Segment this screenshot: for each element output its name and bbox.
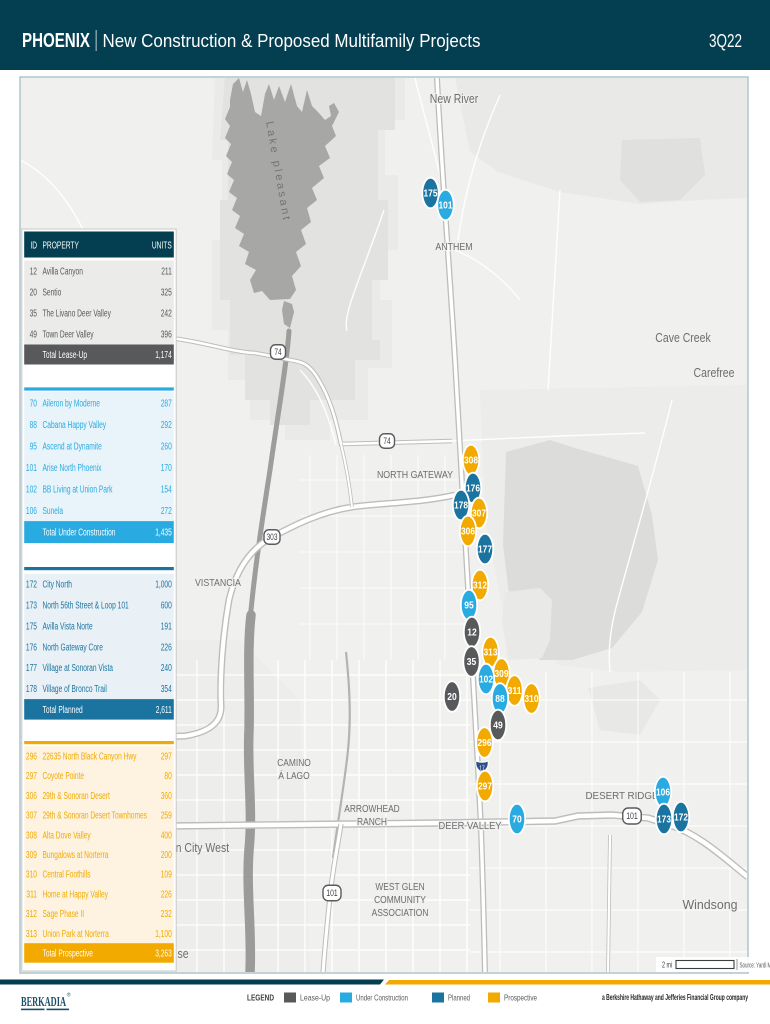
svg-text:307: 307 (26, 811, 37, 822)
svg-text:176: 176 (26, 642, 37, 653)
svg-text:UNITS: UNITS (152, 240, 172, 251)
svg-text:PHOENIX: PHOENIX (22, 30, 90, 52)
svg-text:178: 178 (26, 684, 37, 695)
svg-text:297: 297 (26, 771, 37, 782)
svg-text:Prospective: Prospective (504, 994, 537, 1003)
svg-text:354: 354 (161, 684, 172, 695)
svg-text:95: 95 (30, 441, 38, 452)
svg-text:240: 240 (161, 663, 172, 674)
svg-text:170: 170 (161, 463, 172, 474)
svg-text:Lease-Up: Lease-Up (300, 994, 330, 1003)
svg-text:Cave Creek: Cave Creek (655, 331, 711, 345)
svg-text:DEER VALLEY: DEER VALLEY (439, 821, 502, 832)
svg-text:22635 North Black Canyon Hwy: 22635 North Black Canyon Hwy (43, 751, 137, 762)
svg-text:PROPERTY: PROPERTY (43, 240, 80, 251)
svg-text:259: 259 (161, 811, 172, 822)
svg-text:272: 272 (161, 506, 172, 517)
svg-text:310: 310 (26, 870, 37, 881)
svg-text:172: 172 (26, 580, 37, 591)
svg-text:306: 306 (26, 791, 37, 802)
svg-text:88: 88 (495, 693, 505, 705)
svg-text:177: 177 (478, 544, 492, 556)
svg-text:Home at Happy Valley: Home at Happy Valley (43, 889, 109, 900)
svg-text:309: 309 (26, 850, 37, 861)
svg-text:309: 309 (495, 668, 509, 680)
svg-text:95: 95 (464, 600, 474, 612)
svg-text:308: 308 (464, 455, 478, 467)
svg-text:74: 74 (274, 347, 281, 357)
svg-text:2 mi: 2 mi (662, 961, 672, 970)
svg-text:172: 172 (674, 812, 688, 824)
svg-text:3Q22: 3Q22 (709, 30, 742, 51)
svg-text:600: 600 (161, 600, 172, 611)
svg-text:242: 242 (161, 308, 172, 319)
svg-text:106: 106 (26, 506, 37, 517)
svg-text:Sage Phase II: Sage Phase II (43, 909, 85, 920)
svg-text:Sunela: Sunela (43, 506, 64, 517)
svg-text:2,611: 2,611 (156, 705, 172, 716)
svg-text:Carefree: Carefree (694, 366, 735, 380)
svg-text:®: ® (67, 992, 71, 999)
svg-text:RANCH: RANCH (357, 817, 387, 828)
svg-text:101: 101 (439, 200, 453, 212)
svg-text:ASSOCIATION: ASSOCIATION (372, 908, 429, 919)
svg-text:260: 260 (161, 441, 172, 452)
svg-text:ID: ID (30, 240, 37, 251)
svg-text:311: 311 (508, 685, 522, 697)
svg-text:Á LAGO: Á LAGO (278, 769, 309, 782)
svg-text:New River: New River (430, 92, 478, 106)
svg-text:308: 308 (26, 830, 37, 841)
svg-text:VISTANCIA: VISTANCIA (195, 577, 241, 589)
svg-text:297: 297 (161, 751, 172, 762)
svg-text:177: 177 (26, 663, 37, 674)
svg-text:70: 70 (512, 814, 522, 826)
svg-text:396: 396 (161, 329, 172, 340)
svg-text:LEGEND: LEGEND (247, 994, 274, 1003)
svg-text:Union Park at Norterra: Union Park at Norterra (43, 929, 110, 940)
svg-text:12: 12 (467, 627, 477, 639)
svg-text:New Construction & Proposed Mu: New Construction & Proposed Multifamily … (103, 30, 481, 51)
svg-text:109: 109 (161, 870, 172, 881)
svg-text:1,174: 1,174 (155, 350, 172, 361)
svg-text:Village of Bronco Trail: Village of Bronco Trail (43, 684, 107, 695)
svg-text:296: 296 (26, 751, 37, 762)
svg-text:Source: Yardi Matrix: Source: Yardi Matrix (740, 961, 770, 970)
svg-text:49: 49 (493, 720, 503, 732)
svg-text:400: 400 (161, 830, 172, 841)
svg-text:306: 306 (461, 526, 475, 538)
svg-text:Central Foothills: Central Foothills (43, 870, 91, 881)
svg-text:Alta Dove Valley: Alta Dove Valley (43, 830, 91, 841)
svg-text:20: 20 (30, 287, 38, 298)
svg-text:ARROWHEAD: ARROWHEAD (344, 804, 400, 815)
svg-text:Total Planned: Total Planned (43, 705, 83, 716)
svg-text:20: 20 (447, 691, 457, 703)
svg-text:102: 102 (26, 484, 37, 495)
svg-text:Sentio: Sentio (43, 287, 62, 298)
svg-text:175: 175 (424, 188, 438, 200)
svg-text:CAMINO: CAMINO (277, 758, 311, 769)
svg-text:312: 312 (26, 909, 37, 920)
svg-text:WEST GLEN: WEST GLEN (375, 882, 424, 893)
svg-text:80: 80 (164, 771, 172, 782)
svg-text:Aileron by Moderne: Aileron by Moderne (43, 398, 101, 409)
svg-text:Windsong: Windsong (683, 898, 738, 912)
svg-text:49: 49 (30, 329, 37, 340)
svg-text:The Livano Deer Valley: The Livano Deer Valley (43, 308, 111, 319)
svg-text:297: 297 (478, 781, 492, 793)
svg-text:NORTH GATEWAY: NORTH GATEWAY (377, 469, 453, 481)
svg-text:175: 175 (26, 621, 37, 632)
svg-text:101: 101 (326, 888, 337, 898)
svg-text:1,435: 1,435 (155, 528, 172, 539)
svg-text:COMMUNITY: COMMUNITY (374, 895, 426, 906)
svg-text:a Berkshire Hathaway and Jeffe: a Berkshire Hathaway and Jefferies Finan… (602, 993, 748, 1002)
svg-text:Arise North Phoenix: Arise North Phoenix (43, 463, 102, 474)
svg-text:Coyote Pointe: Coyote Pointe (43, 771, 85, 782)
svg-text:313: 313 (26, 929, 37, 940)
svg-text:70: 70 (30, 398, 38, 409)
svg-text:303: 303 (267, 532, 278, 542)
svg-text:173: 173 (26, 600, 37, 611)
svg-text:101: 101 (626, 811, 638, 821)
svg-text:Total Under Construction: Total Under Construction (43, 528, 116, 539)
svg-text:74: 74 (383, 436, 390, 446)
svg-text:Total Prospective: Total Prospective (43, 948, 94, 959)
svg-text:101: 101 (26, 463, 37, 474)
svg-text:29th & Sonoran Desert: 29th & Sonoran Desert (43, 791, 111, 802)
svg-text:Planned: Planned (448, 994, 470, 1003)
svg-text:Ascend at Dynamite: Ascend at Dynamite (43, 441, 103, 452)
svg-text:3,263: 3,263 (155, 948, 172, 959)
svg-text:307: 307 (472, 508, 486, 520)
svg-text:292: 292 (161, 420, 172, 431)
svg-text:BB Living at Union Park: BB Living at Union Park (43, 484, 113, 495)
svg-text:se: se (177, 947, 188, 961)
svg-text:29th & Sonoran Desert Townhome: 29th & Sonoran Desert Townhomes (43, 811, 148, 822)
svg-text:226: 226 (161, 642, 172, 653)
svg-text:310: 310 (525, 693, 539, 705)
svg-text:1,100: 1,100 (155, 929, 172, 940)
svg-text:Village at Sonoran Vista: Village at Sonoran Vista (43, 663, 114, 674)
svg-text:BERKADIA: BERKADIA (21, 995, 67, 1010)
svg-text:Avilla Vista Norte: Avilla Vista Norte (43, 621, 94, 632)
svg-text:173: 173 (657, 814, 671, 826)
svg-text:12: 12 (30, 266, 37, 277)
svg-text:178: 178 (454, 500, 468, 512)
svg-text:ANTHEM: ANTHEM (435, 241, 472, 253)
svg-text:35: 35 (30, 308, 38, 319)
svg-text:311: 311 (26, 889, 37, 900)
svg-text:200: 200 (161, 850, 172, 861)
svg-text:North Gateway Core: North Gateway Core (43, 642, 104, 653)
svg-text:211: 211 (161, 266, 172, 277)
svg-text:Bungalows at Norterra: Bungalows at Norterra (43, 850, 109, 861)
svg-text:312: 312 (473, 580, 487, 592)
svg-text:North 56th Street & Loop 101: North 56th Street & Loop 101 (43, 600, 129, 611)
svg-text:232: 232 (161, 909, 172, 920)
svg-text:Avilla Canyon: Avilla Canyon (43, 266, 83, 277)
svg-text:Cabana Happy Valley: Cabana Happy Valley (43, 420, 107, 431)
svg-text:1,000: 1,000 (155, 580, 172, 591)
svg-text:191: 191 (161, 621, 172, 632)
svg-text:226: 226 (161, 889, 172, 900)
svg-text:325: 325 (161, 287, 172, 298)
svg-text:Under Construction: Under Construction (356, 994, 408, 1003)
svg-text:313: 313 (484, 647, 498, 659)
svg-text:296: 296 (478, 737, 492, 749)
svg-text:102: 102 (479, 674, 493, 686)
svg-text:154: 154 (161, 484, 172, 495)
svg-text:176: 176 (466, 483, 480, 495)
svg-text:287: 287 (161, 398, 172, 409)
svg-text:Town Deer Valley: Town Deer Valley (43, 329, 94, 340)
svg-text:360: 360 (161, 791, 172, 802)
svg-text:106: 106 (656, 787, 670, 799)
svg-text:DESERT RIDGE: DESERT RIDGE (586, 791, 659, 802)
svg-text:35: 35 (467, 656, 477, 668)
svg-text:88: 88 (30, 420, 38, 431)
svg-text:Total Lease-Up: Total Lease-Up (43, 350, 88, 361)
svg-text:City North: City North (43, 580, 73, 591)
